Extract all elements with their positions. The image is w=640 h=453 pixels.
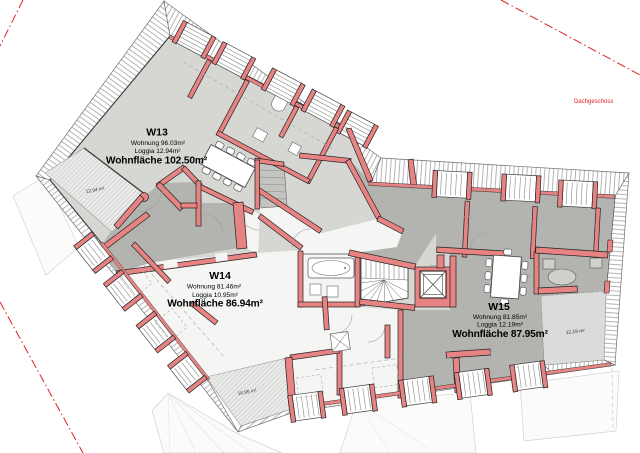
svg-text:Wohnfläche 86.94m²: Wohnfläche 86.94m² <box>167 299 263 310</box>
svg-text:Wohnfläche 102.50m²: Wohnfläche 102.50m² <box>106 156 208 167</box>
svg-text:Wohnfläche 87.95m²: Wohnfläche 87.95m² <box>452 329 548 340</box>
svg-text:W15: W15 <box>488 301 510 313</box>
svg-text:W14: W14 <box>209 270 231 282</box>
svg-text:Wohnung 81.85m²: Wohnung 81.85m² <box>473 314 528 321</box>
svg-text:Dachgeschoss: Dachgeschoss <box>574 99 613 105</box>
svg-text:Wohnung 81.46m²: Wohnung 81.46m² <box>187 284 242 291</box>
svg-text:W13: W13 <box>146 127 168 139</box>
svg-text:Wohnung 96.03m²: Wohnung 96.03m² <box>131 140 186 147</box>
svg-text:Loggia 12.94m²: Loggia 12.94m² <box>135 148 182 155</box>
svg-text:Loggia 12.19m²: Loggia 12.19m² <box>477 322 524 329</box>
